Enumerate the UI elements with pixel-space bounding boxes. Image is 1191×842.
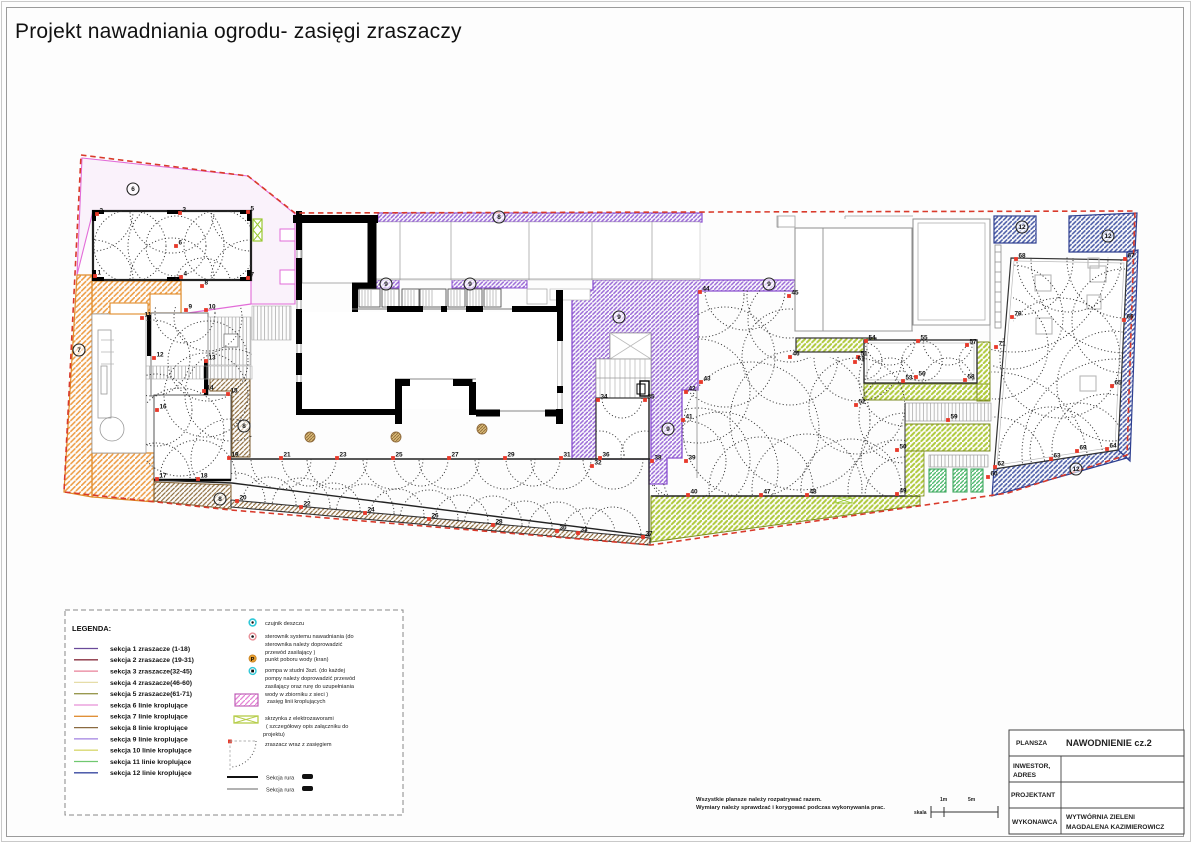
svg-text:WYTWÓRNIA ZIELENI: WYTWÓRNIA ZIELENI: [1066, 812, 1135, 821]
svg-text:35: 35: [648, 394, 656, 401]
svg-text:sekcja 4 zraszacze(46-60): sekcja 4 zraszacze(46-60): [110, 680, 192, 687]
svg-text:68: 68: [1019, 253, 1027, 260]
svg-text:29: 29: [508, 452, 516, 459]
svg-text:( szczegółowy opis załączniku: ( szczegółowy opis załączniku do: [266, 724, 348, 730]
svg-text:60: 60: [991, 471, 999, 478]
svg-text:67: 67: [1128, 253, 1136, 260]
svg-text:47: 47: [764, 489, 772, 496]
svg-text:sekcja 5 zraszacze(61-71): sekcja 5 zraszacze(61-71): [110, 691, 192, 698]
svg-text:24: 24: [368, 507, 376, 514]
svg-text:PROJEKTANT: PROJEKTANT: [1011, 792, 1055, 799]
svg-text:sekcja 3 zraszacze(32-45): sekcja 3 zraszacze(32-45): [110, 669, 192, 676]
svg-text:49: 49: [900, 488, 908, 495]
svg-text:sekcja 8 linie kroplujące: sekcja 8 linie kroplujące: [110, 725, 188, 732]
svg-text:sterownik systemu nawadniania: sterownik systemu nawadniania (do: [265, 634, 354, 640]
svg-text:1m: 1m: [940, 797, 948, 803]
svg-text:Wymiary należy sprawdzać i kor: Wymiary należy sprawdzać i korygować pod…: [696, 805, 885, 811]
svg-text:punkt poboru wody (kran): punkt poboru wody (kran): [265, 657, 329, 663]
svg-text:10: 10: [209, 304, 217, 311]
svg-text:9: 9: [767, 281, 771, 288]
svg-text:P: P: [251, 657, 255, 663]
svg-text:9: 9: [617, 314, 621, 321]
svg-text:sterownika należy doprowadzić: sterownika należy doprowadzić: [265, 642, 343, 648]
svg-text:8: 8: [242, 423, 246, 430]
svg-text:41: 41: [686, 414, 694, 421]
svg-text:56: 56: [919, 371, 927, 378]
svg-text:55: 55: [921, 335, 929, 342]
svg-text:37: 37: [646, 531, 654, 538]
svg-text:5m: 5m: [968, 797, 976, 803]
svg-text:31: 31: [564, 452, 572, 459]
svg-text:PLANSZA: PLANSZA: [1016, 740, 1047, 747]
svg-text:MAGDALENA KAZIMIEROWICZ: MAGDALENA KAZIMIEROWICZ: [1066, 824, 1164, 831]
svg-text:5: 5: [251, 206, 255, 213]
svg-text:57: 57: [970, 339, 978, 346]
svg-text:39: 39: [689, 455, 697, 462]
svg-text:12: 12: [157, 352, 165, 359]
svg-text:62: 62: [998, 461, 1006, 468]
svg-text:sekcja 2 zraszacze (19-31): sekcja 2 zraszacze (19-31): [110, 657, 194, 664]
svg-text:13: 13: [209, 355, 217, 362]
svg-text:36: 36: [603, 452, 611, 459]
svg-text:9: 9: [468, 281, 472, 288]
svg-text:63: 63: [1054, 453, 1062, 460]
svg-text:sekcja 12 linie kroplujące: sekcja 12 linie kroplujące: [110, 770, 192, 777]
svg-text:3: 3: [183, 207, 187, 214]
svg-text:projektu): projektu): [263, 732, 285, 738]
svg-text:71: 71: [999, 341, 1007, 348]
svg-text:40: 40: [691, 489, 699, 496]
svg-text:INWESTOR,: INWESTOR,: [1013, 763, 1050, 770]
svg-text:sekcja 7 linie kroplujące: sekcja 7 linie kroplujące: [110, 714, 188, 721]
svg-text:przewód zasilający ): przewód zasilający ): [265, 650, 316, 656]
svg-text:46: 46: [793, 351, 801, 358]
svg-text:16: 16: [160, 404, 168, 411]
svg-text:7: 7: [77, 347, 81, 354]
svg-text:21: 21: [284, 452, 292, 459]
svg-text:65: 65: [1115, 380, 1123, 387]
svg-text:11: 11: [145, 312, 152, 319]
svg-text:18: 18: [201, 473, 209, 480]
svg-text:54: 54: [869, 335, 877, 342]
svg-text:8: 8: [497, 214, 501, 221]
svg-text:25: 25: [396, 452, 404, 459]
svg-text:czujnik deszczu: czujnik deszczu: [265, 621, 304, 627]
svg-text:58: 58: [968, 374, 976, 381]
svg-text:23: 23: [340, 452, 348, 459]
svg-text:7: 7: [251, 272, 255, 279]
svg-text:43: 43: [704, 376, 712, 383]
svg-text:sekcja 6 linie kroplujące: sekcja 6 linie kroplujące: [110, 702, 188, 709]
svg-text:70: 70: [1015, 311, 1023, 318]
svg-text:WYKONAWCA: WYKONAWCA: [1012, 819, 1058, 826]
svg-text:sekcja 10 linie kroplujące: sekcja 10 linie kroplujące: [110, 748, 192, 755]
svg-text:59: 59: [951, 414, 959, 421]
svg-text:19: 19: [232, 452, 240, 459]
svg-text:22: 22: [304, 501, 312, 508]
svg-text:8: 8: [205, 280, 209, 287]
svg-text:45: 45: [792, 290, 800, 297]
svg-text:50: 50: [900, 444, 908, 451]
svg-text:NAWODNIENIE cz.2: NAWODNIENIE cz.2: [1066, 738, 1152, 748]
svg-text:64: 64: [1110, 443, 1118, 450]
svg-text:28: 28: [496, 519, 504, 526]
svg-text:sekcja 9 linie kroplujące: sekcja 9 linie kroplujące: [110, 736, 188, 743]
svg-text:Sekcja rura: Sekcja rura: [266, 788, 295, 794]
svg-text:33: 33: [581, 527, 589, 534]
svg-text:15: 15: [231, 388, 239, 395]
svg-text:12: 12: [1018, 224, 1026, 231]
svg-text:Sekcja rura: Sekcja rura: [266, 776, 295, 782]
svg-text:20: 20: [240, 495, 248, 502]
svg-text:1: 1: [98, 270, 102, 277]
svg-text:LEGENDA:: LEGENDA:: [72, 624, 111, 633]
svg-text:32: 32: [595, 460, 603, 467]
svg-text:38: 38: [655, 455, 663, 462]
svg-text:pompy należy doprowadzić przew: pompy należy doprowadzić przewód: [265, 676, 355, 682]
svg-text:52: 52: [859, 399, 867, 406]
svg-text:pompa w studni 3szt. (do każde: pompa w studni 3szt. (do każdej: [265, 668, 345, 674]
svg-text:6: 6: [179, 240, 183, 247]
svg-text:6: 6: [131, 186, 135, 193]
svg-text:27: 27: [452, 452, 460, 459]
svg-text:12: 12: [1072, 466, 1080, 473]
svg-text:sekcja 11 linie kroplujące: sekcja 11 linie kroplujące: [110, 759, 191, 766]
svg-text:sekcja 1 zraszacze (1-18): sekcja 1 zraszacze (1-18): [110, 646, 190, 653]
svg-text:12: 12: [1104, 233, 1112, 240]
svg-text:zasięg linii kroplujących: zasięg linii kroplujących: [267, 699, 325, 705]
svg-text:9: 9: [384, 281, 388, 288]
svg-text:8: 8: [218, 496, 222, 503]
svg-text:26: 26: [432, 513, 440, 520]
svg-text:30: 30: [560, 525, 568, 532]
svg-text:61: 61: [858, 356, 866, 363]
svg-text:ADRES: ADRES: [1013, 772, 1037, 779]
svg-text:34: 34: [601, 394, 609, 401]
svg-text:wody w zbiorniku z sieci ): wody w zbiorniku z sieci ): [264, 692, 328, 698]
svg-text:zraszacz wraz z zasięgiem: zraszacz wraz z zasięgiem: [265, 742, 332, 748]
svg-text:53: 53: [906, 375, 914, 382]
svg-text:4: 4: [184, 271, 188, 278]
svg-text:skala: skala: [914, 810, 927, 816]
svg-text:Wszystkie plansze należy rozpa: Wszystkie plansze należy rozpatrywać raz…: [696, 797, 822, 803]
svg-text:69: 69: [1080, 445, 1088, 452]
svg-text:2: 2: [100, 208, 104, 215]
svg-text:66: 66: [1127, 314, 1135, 321]
svg-text:9: 9: [189, 304, 193, 311]
svg-text:14: 14: [207, 385, 215, 392]
svg-text:17: 17: [160, 473, 168, 480]
svg-text:skrzynka z elektrozaworami: skrzynka z elektrozaworami: [265, 716, 334, 722]
svg-text:42: 42: [689, 386, 697, 393]
svg-text:44: 44: [703, 286, 711, 293]
svg-text:48: 48: [810, 489, 818, 496]
svg-text:9: 9: [666, 426, 670, 433]
svg-text:zasilający oraz rurę do uzupeł: zasilający oraz rurę do uzupełniania: [265, 684, 355, 690]
